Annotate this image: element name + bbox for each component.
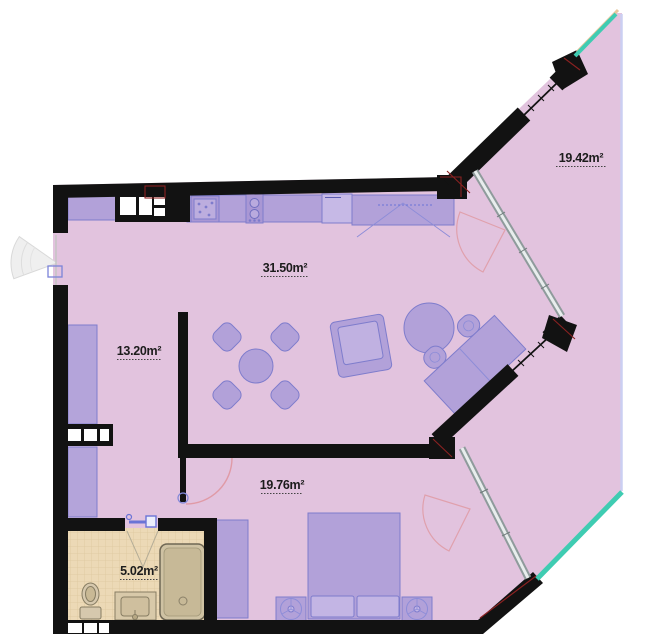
bed-icon [308,513,400,619]
armchair-icon [330,314,393,379]
hallway-wardrobe-lower-icon [68,447,97,517]
nightstand-right-icon [402,597,432,621]
floor-plan-page: 31.50m² 19.42m² 13.20m² 19.76m² 5.02m² [0,0,663,634]
kitchen-wardrobe-icon [352,195,454,225]
dining-table-icon [239,349,273,383]
label-bathroom: 5.02m² [120,564,158,578]
kitchen-cabinet-icon [68,195,117,220]
wall-left-upper [53,185,68,233]
wall-left-lower [53,285,68,620]
ottoman-icon [404,303,454,353]
wall-hallway-vertical [178,312,188,444]
shaft-left [53,424,113,446]
wall-bathroom-top-right [158,518,210,531]
hallway-wardrobe-upper-icon [68,325,97,424]
label-terrace: 19.42m² [559,151,604,165]
refrigerator-icon [322,194,352,223]
wall-bathroom-top-left [68,518,125,531]
label-bedroom: 19.76m² [260,478,305,492]
sink-icon [191,196,219,222]
nightstand-left-icon [276,597,306,621]
wall-bathroom-right [204,518,217,620]
bedroom-wardrobe-icon [216,520,248,618]
bedroom-furniture [216,513,432,621]
floor-plan-svg: 31.50m² 19.42m² 13.20m² 19.76m² 5.02m² [0,0,663,634]
wall-bedroom-top [178,444,443,458]
stove-icon [246,194,263,223]
shower-icon [160,544,205,620]
label-living-room: 31.50m² [263,261,308,275]
label-hallway: 13.20m² [117,344,162,358]
shaft-top [115,191,190,222]
shaft-bottom [68,623,109,633]
washbasin-icon [115,592,156,620]
